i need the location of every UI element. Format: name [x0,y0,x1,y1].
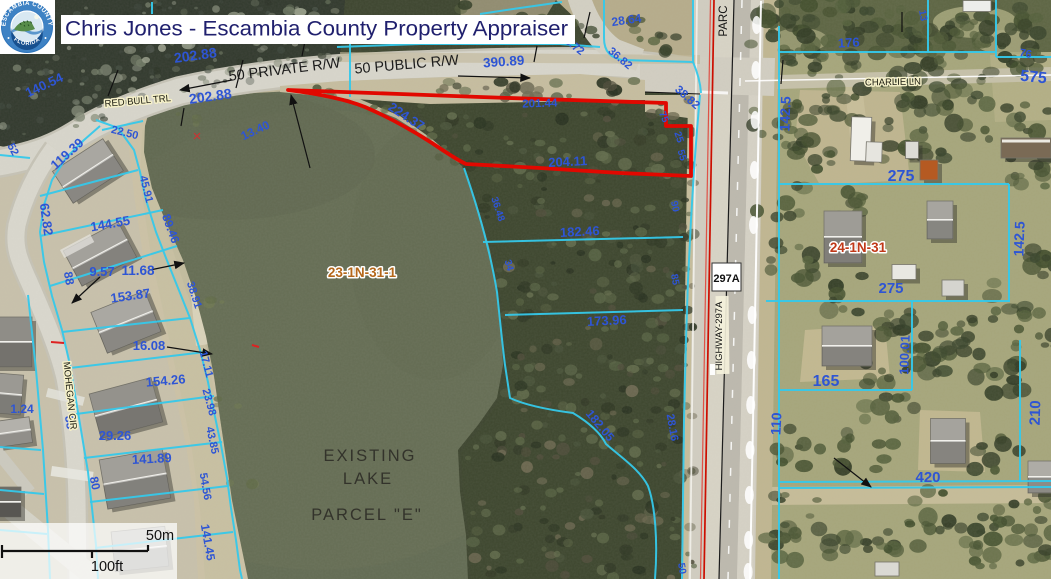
svg-text:420: 420 [915,469,940,486]
svg-text:182.46: 182.46 [560,223,600,240]
svg-text:176: 176 [838,34,860,50]
svg-text:142.5: 142.5 [1010,221,1027,257]
svg-text:204.11: 204.11 [548,153,588,170]
svg-text:100ft: 100ft [91,559,123,575]
svg-text:110: 110 [767,412,784,436]
svg-text:142.5: 142.5 [776,96,793,132]
svg-text:CHARLIE LN: CHARLIE LN [865,77,921,89]
svg-text:16.08: 16.08 [133,338,166,353]
svg-text:29.26: 29.26 [99,428,132,443]
svg-text:201.44: 201.44 [522,97,558,110]
svg-text:9.57: 9.57 [89,264,114,279]
svg-text:1.24: 1.24 [10,402,34,416]
svg-text:PARC: PARC [718,5,730,36]
svg-text:173.96: 173.96 [587,312,627,329]
svg-text:575: 575 [1019,68,1047,88]
svg-text:23-1N-31-1: 23-1N-31-1 [328,265,397,280]
svg-text:50m: 50m [146,528,174,544]
svg-text:LAKE: LAKE [343,470,393,488]
svg-text:297A: 297A [713,273,739,285]
svg-text:165: 165 [813,373,840,390]
svg-text:76: 76 [1018,47,1032,61]
svg-text:HIGHWAY-297A: HIGHWAY-297A [714,301,725,370]
svg-text:PARCEL "E": PARCEL "E" [311,506,423,524]
svg-text:390.89: 390.89 [483,53,525,71]
svg-text:210: 210 [1027,400,1045,426]
svg-text:11.68: 11.68 [121,263,155,278]
svg-text:EXISTING: EXISTING [323,447,416,465]
svg-text:275: 275 [888,168,915,185]
svg-text:24-1N-31: 24-1N-31 [830,240,887,255]
svg-text:Chris Jones - Escambia County: Chris Jones - Escambia County Property A… [65,18,568,41]
svg-text:100.01: 100.01 [896,335,912,375]
svg-text:88: 88 [61,271,77,287]
svg-text:141.89: 141.89 [132,450,172,467]
svg-text:275: 275 [878,280,903,297]
